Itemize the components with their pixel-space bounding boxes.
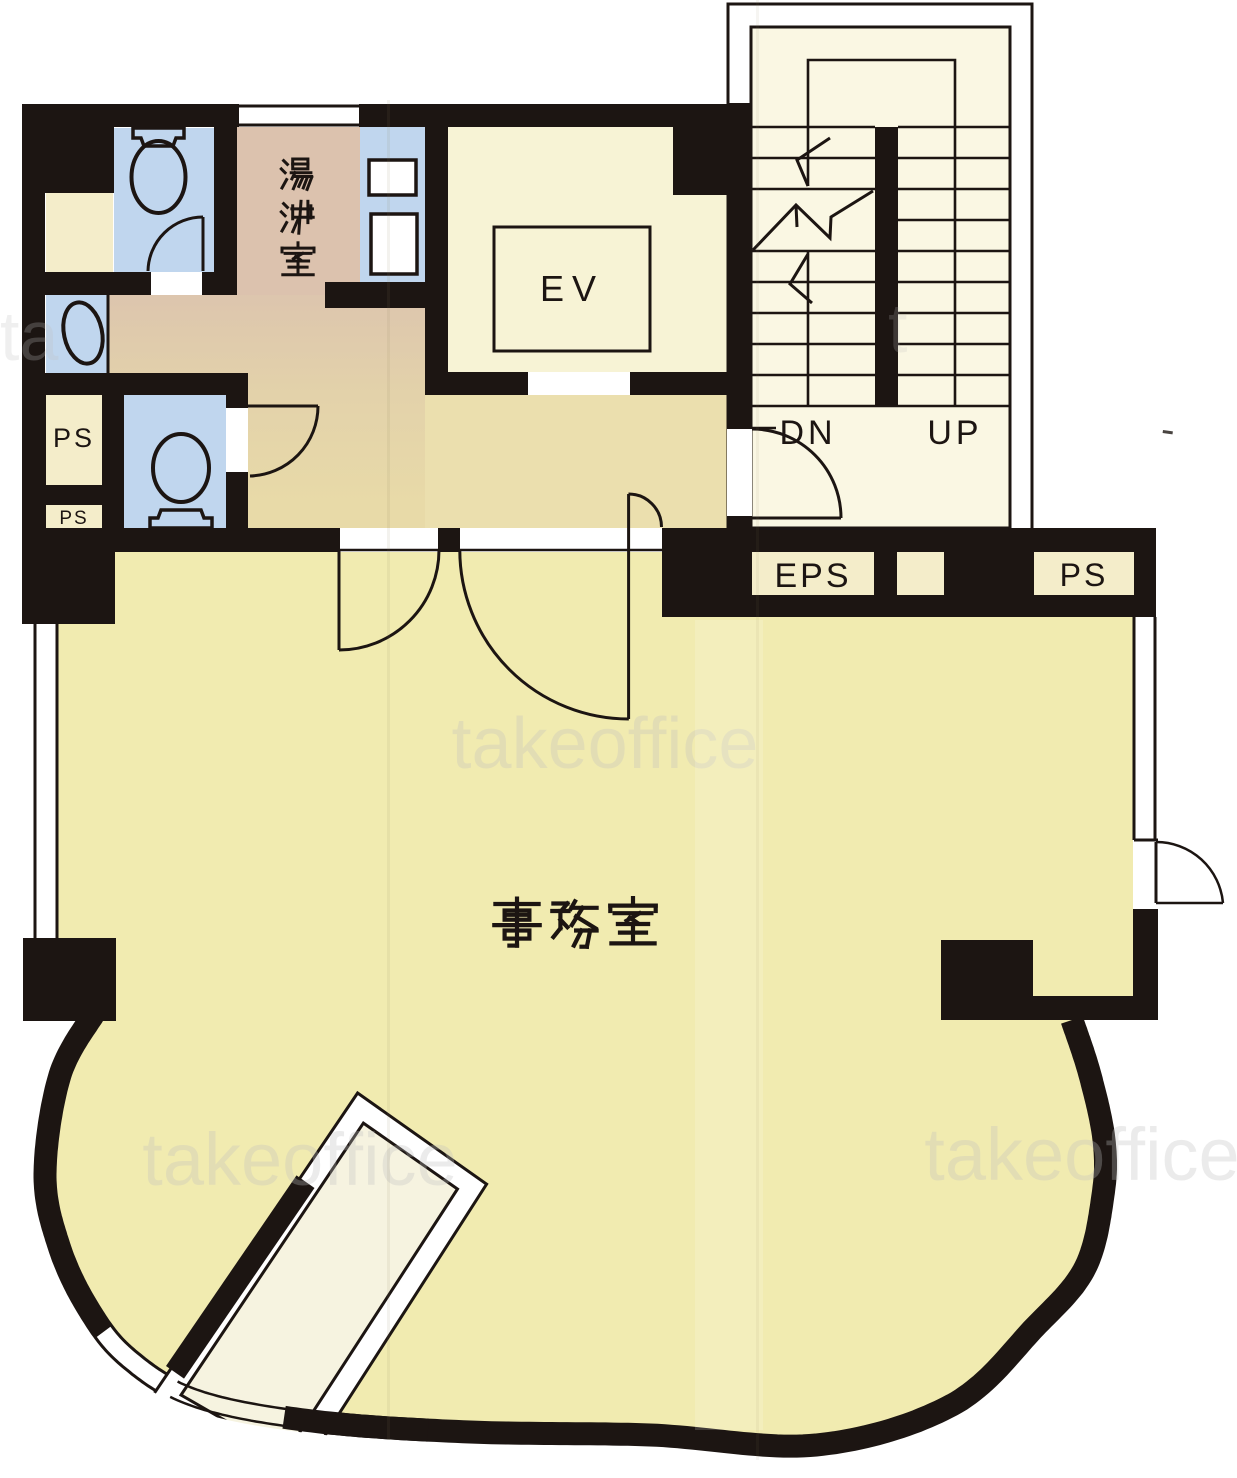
svg-text:DN: DN [779,414,836,452]
svg-text:takeoffice: takeoffice [142,1118,457,1201]
svg-text:PS: PS [59,508,88,529]
svg-text:UP: UP [927,414,982,452]
svg-text:PS: PS [1060,557,1109,593]
svg-text:takeoffice: takeoffice [924,1113,1237,1196]
svg-text:ta: ta [0,297,58,375]
svg-text:EV: EV [540,268,604,309]
svg-text:PS: PS [53,423,95,453]
svg-text:EPS: EPS [774,557,851,595]
svg-text:t: t [888,289,907,367]
